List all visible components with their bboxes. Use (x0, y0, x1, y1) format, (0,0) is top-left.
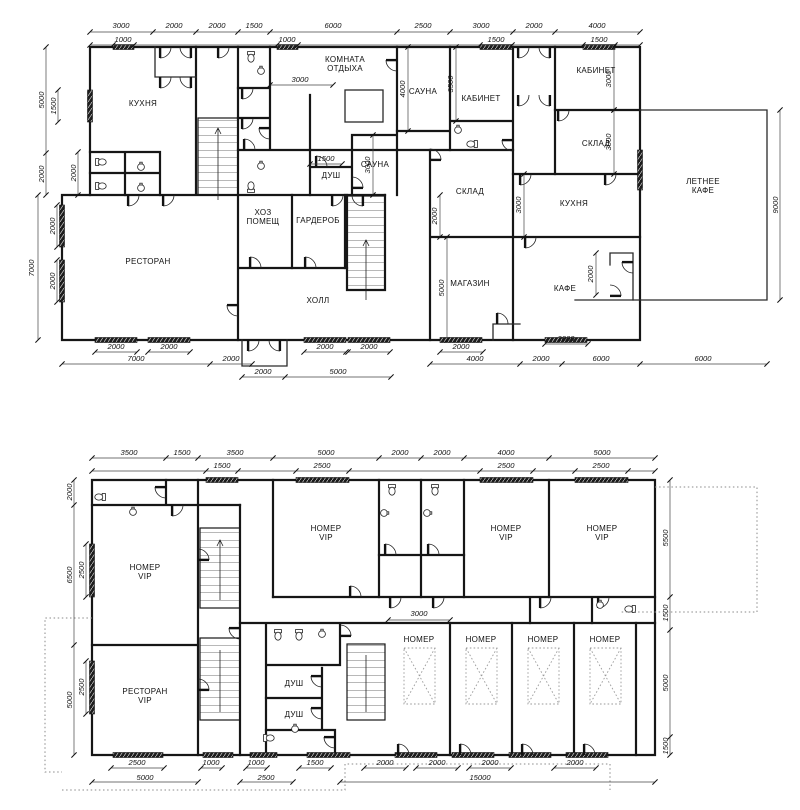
dim-label: 3500 (121, 448, 139, 457)
door-arc (517, 47, 529, 58)
dim-label: 3000 (113, 21, 131, 30)
dim-label: 3500 (227, 448, 245, 457)
dim-label: 4000 (589, 21, 607, 30)
room-label: СКЛАД (456, 187, 484, 196)
toilet-icon (389, 485, 396, 496)
dim-label: 2000 (586, 265, 595, 284)
door-arc (610, 285, 621, 297)
bed-icon (404, 648, 435, 704)
dim-label: 2500 (77, 678, 86, 697)
dim-label: 1500 (174, 448, 192, 457)
sink-icon (258, 161, 265, 169)
dim-label: 6000 (325, 21, 343, 30)
dim-label: 2000 (391, 448, 410, 457)
toilet-icon (95, 494, 106, 501)
dim-label: 1500 (488, 35, 506, 44)
sink-icon (130, 507, 137, 515)
door-arc (155, 486, 166, 498)
room-label: ДУШ (285, 710, 304, 719)
dim-label: 2000 (557, 334, 576, 343)
dim-label: 15000 (469, 773, 491, 782)
door-arc (539, 597, 551, 608)
room-label: ДУШ (285, 679, 304, 688)
room-label: КОМНАТАОТДЫХА (325, 55, 365, 73)
dim-label: 2000 (376, 758, 395, 767)
dim-label: 1500 (246, 21, 264, 30)
room-label: КАБИНЕТ (461, 94, 500, 103)
door-arc (340, 625, 351, 637)
dim-label: 1500 (318, 154, 336, 163)
bed-icon (466, 648, 497, 704)
sink-icon (138, 162, 145, 170)
dim-label: 9000 (771, 196, 780, 214)
dim-label: 1000 (203, 758, 221, 767)
dim-label: 1500 (661, 604, 670, 622)
dim-label: 2000 (107, 342, 126, 351)
dim-label: 5000 (594, 448, 612, 457)
dim-label: 3000 (514, 196, 523, 214)
pool-table (345, 90, 383, 122)
door-arc (427, 544, 439, 555)
room-label: РЕСТОРАНVIP (122, 687, 167, 705)
dim-label: 2500 (77, 561, 86, 580)
door-arc (227, 304, 238, 316)
room-label: НОМЕРVIP (311, 524, 342, 542)
door-arc (622, 261, 633, 273)
dim-label: 3000 (473, 21, 491, 30)
dim-label: 2000 (48, 272, 57, 291)
room-label: НОМЕР (528, 635, 559, 644)
dim-label: 2000 (65, 483, 74, 502)
dim-label: 4000 (498, 448, 516, 457)
door-arc (162, 195, 174, 206)
dim-label: 1000 (279, 35, 297, 44)
dim-label: 2000 (481, 758, 500, 767)
dim-label: 1000 (115, 35, 133, 44)
room-label: КАФЕ (554, 284, 576, 293)
dim-label: 2000 (430, 207, 439, 226)
door-arc (304, 257, 316, 268)
dim-label: 5500 (661, 529, 670, 547)
dim-label: 2000 (525, 21, 544, 30)
dim-label: 2000 (222, 354, 241, 363)
door-arc (269, 340, 281, 351)
door-arc (259, 127, 270, 139)
door-arc (249, 257, 261, 268)
dim-label: 6000 (593, 354, 611, 363)
room-label: НОМЕРVIP (587, 524, 618, 542)
floor1-plan: КУХНЯКОМНАТАОТДЫХАСАУНАКАБИНЕТСАУНАДУШКА… (27, 21, 783, 380)
dim-label: 2000 (208, 21, 227, 30)
dim-label: 2000 (428, 758, 447, 767)
toilet-icon (296, 630, 303, 641)
dim-label: 1500 (49, 97, 58, 115)
toilet-icon (625, 606, 636, 613)
room-label: САУНА (409, 87, 438, 96)
dim-label: 2000 (316, 342, 335, 351)
dim-label: 2000 (254, 367, 273, 376)
room-label: ДУШ (322, 171, 341, 180)
floor1-dim-lines (35, 29, 782, 379)
sink-icon (455, 125, 462, 133)
dim-label: 6500 (65, 566, 74, 584)
door-arc (229, 627, 240, 639)
door-arc (180, 47, 192, 58)
room-label: НОМЕР (590, 635, 621, 644)
floor1-fixtures (96, 52, 478, 193)
dim-label: 1500 (591, 35, 609, 44)
room-label: ХОЛЛ (307, 296, 330, 305)
dim-label: 2500 (313, 461, 332, 470)
dim-label: 1500 (214, 461, 232, 470)
floor2-plan: НОМЕРVIPНОМЕРVIPНОМЕРVIPНОМЕРVIPРЕСТОРАН… (45, 448, 757, 790)
room-label: НОМЕРVIP (130, 563, 161, 581)
dim-label: 2000 (37, 165, 46, 184)
dim-label: 7000 (128, 354, 146, 363)
plans-canvas: КУХНЯКОМНАТАОТДЫХАСАУНАКАБИНЕТСАУНАДУШКА… (0, 0, 800, 810)
dim-label: 5000 (137, 773, 155, 782)
toilet-icon (96, 183, 107, 190)
room-label: НОМЕРVIP (491, 524, 522, 542)
bed-icon (590, 648, 621, 704)
door-arc (217, 47, 229, 58)
sink-icon (258, 66, 265, 74)
dim-label: 2000 (566, 758, 585, 767)
door-arc (352, 177, 363, 189)
dim-label: 2000 (69, 164, 78, 183)
door-arc (159, 47, 171, 58)
room-label: ГАРДЕРОБ (296, 216, 340, 225)
dim-label: 5000 (318, 448, 336, 457)
door-arc (247, 340, 259, 351)
door-arc (389, 597, 401, 608)
dim-label: 1500 (661, 737, 670, 755)
door-arc (384, 544, 396, 555)
room-label: НОМЕР (404, 635, 435, 644)
dim-label: 5000 (661, 674, 670, 692)
room-label: ХОЗПОМЕЩ (247, 208, 280, 226)
dim-label: 1500 (307, 758, 325, 767)
dim-label: 3000 (604, 70, 613, 88)
door-arc (524, 237, 536, 248)
dim-label: 5000 (437, 279, 446, 297)
dim-label: 2000 (165, 21, 184, 30)
dim-label: 2500 (128, 758, 147, 767)
door-arc (349, 586, 361, 597)
door-arc (604, 174, 616, 185)
room-label: ЛЕТНЕЕКАФЕ (686, 177, 720, 195)
dim-label: 2500 (592, 461, 611, 470)
dim-label: 7000 (27, 259, 36, 277)
door-arc (159, 77, 171, 88)
dim-label: 2000 (532, 354, 551, 363)
door-arc (311, 707, 322, 719)
door-arc (539, 47, 551, 58)
door-arc (539, 95, 551, 106)
floor-plan-drawing: КУХНЯКОМНАТАОТДЫХАСАУНАКАБИНЕТСАУНАДУШКА… (0, 0, 800, 810)
dim-label: 2000 (160, 342, 179, 351)
sink-icon (381, 510, 389, 517)
door-arc (243, 139, 255, 150)
dim-label: 6000 (695, 354, 713, 363)
room-label: НОМЕР (466, 635, 497, 644)
dim-label: 3000 (292, 75, 310, 84)
dim-label: 5000 (37, 91, 46, 109)
door-arc (432, 597, 444, 608)
sink-icon (319, 629, 326, 637)
door-arc (241, 118, 253, 129)
door-arc (127, 195, 139, 206)
door-arc (331, 195, 343, 206)
room-label: РЕСТОРАН (125, 257, 170, 266)
dim-label: 2500 (497, 461, 516, 470)
dim-label: 5000 (65, 691, 74, 709)
floor1-dim-labels: 3000200020001500600025003000200040001000… (27, 21, 780, 376)
floor2-dim-labels: 3500150035005000200020004000500015002500… (65, 448, 670, 782)
door-arc (311, 675, 322, 687)
toilet-icon (248, 182, 255, 193)
dim-label: 3000 (604, 133, 613, 151)
door-arc (171, 505, 183, 516)
dim-label: 4000 (398, 80, 407, 98)
dim-label: 2000 (360, 342, 379, 351)
door-arc (519, 174, 531, 185)
dim-label: 1000 (248, 758, 266, 767)
dim-label: 2000 (452, 342, 471, 351)
sink-icon (138, 183, 145, 191)
bed-icon (528, 648, 559, 704)
door-arc (557, 110, 569, 121)
sink-icon (292, 724, 299, 732)
dim-label: 2000 (48, 217, 57, 236)
toilet-icon (264, 735, 275, 742)
dim-label: 3000 (363, 156, 372, 174)
dim-label: 2000 (433, 448, 452, 457)
door-arc (386, 59, 397, 71)
dim-label: 3000 (411, 609, 429, 618)
room-label: КУХНЯ (129, 99, 157, 108)
door-arc (241, 88, 253, 99)
toilet-icon (467, 141, 478, 148)
toilet-icon (248, 52, 255, 63)
dim-label: 2500 (414, 21, 433, 30)
toilet-icon (275, 630, 282, 641)
room-label: КУХНЯ (560, 199, 588, 208)
toilet-icon (432, 485, 439, 496)
door-arc (180, 77, 192, 88)
dim-label: 5000 (330, 367, 348, 376)
dim-label: 4000 (467, 354, 485, 363)
door-arc (517, 95, 529, 106)
door-arc (496, 313, 508, 324)
sink-icon (424, 510, 432, 517)
dim-label: 3500 (446, 75, 455, 93)
dim-label: 2500 (257, 773, 276, 782)
toilet-icon (96, 159, 107, 166)
door-arc (324, 736, 335, 748)
room-label: МАГАЗИН (450, 279, 490, 288)
